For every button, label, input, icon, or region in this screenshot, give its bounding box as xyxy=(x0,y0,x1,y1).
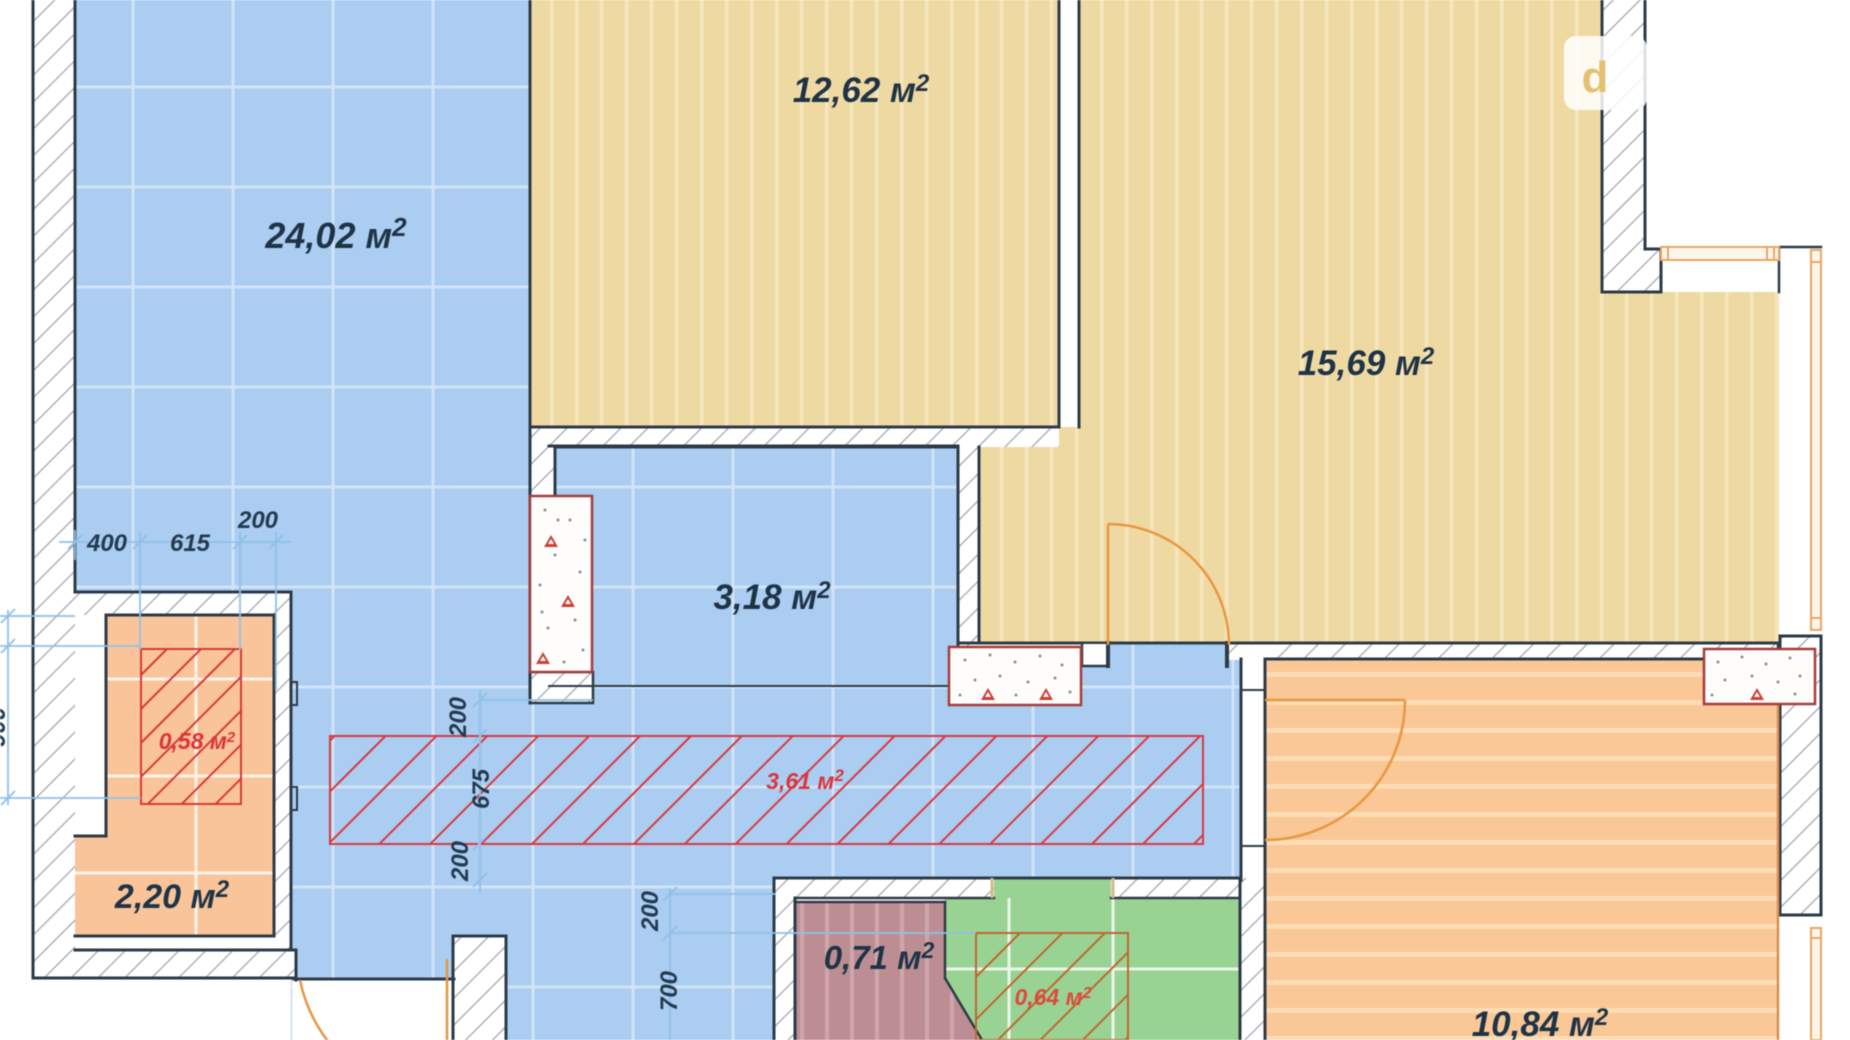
svg-text:200: 200 xyxy=(447,840,474,882)
svg-text:400: 400 xyxy=(86,530,128,557)
svg-text:3,61 м2: 3,61 м2 xyxy=(766,766,844,794)
svg-text:0,64 м2: 0,64 м2 xyxy=(1014,984,1091,1010)
svg-text:3,18 м2: 3,18 м2 xyxy=(713,577,831,617)
svg-text:d: d xyxy=(1582,53,1609,102)
svg-text:675: 675 xyxy=(468,768,495,809)
svg-text:12,62 м2: 12,62 м2 xyxy=(793,70,930,110)
svg-text:0,71 м2: 0,71 м2 xyxy=(824,937,935,976)
svg-text:900: 900 xyxy=(0,706,11,747)
svg-text:200: 200 xyxy=(637,890,664,932)
svg-text:700: 700 xyxy=(656,970,683,1011)
svg-text:615: 615 xyxy=(170,530,211,557)
svg-text:2,20 м2: 2,20 м2 xyxy=(114,876,230,916)
svg-text:10,84 м2: 10,84 м2 xyxy=(1472,1004,1609,1040)
svg-text:200: 200 xyxy=(237,507,279,534)
svg-text:24,02 м2: 24,02 м2 xyxy=(264,212,407,256)
svg-text:200: 200 xyxy=(445,696,472,738)
svg-text:15,69 м2: 15,69 м2 xyxy=(1298,343,1435,383)
svg-text:0,58 м2: 0,58 м2 xyxy=(159,728,236,754)
